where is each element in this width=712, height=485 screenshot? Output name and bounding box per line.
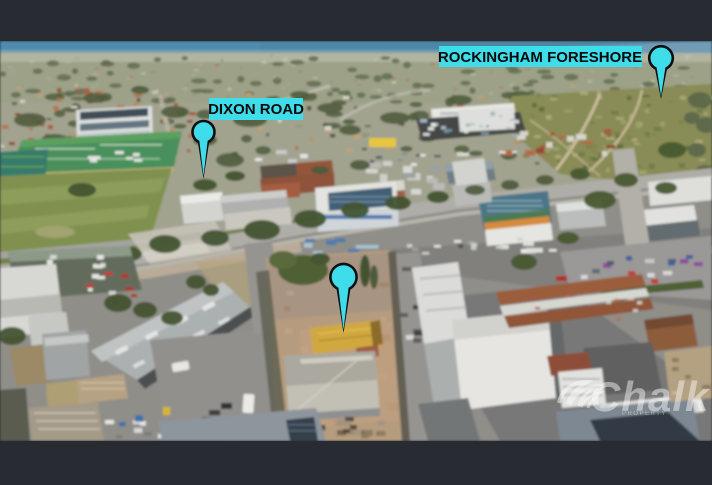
svg-text:DIXON ROAD: DIXON ROAD xyxy=(208,101,304,118)
svg-text:ROCKINGHAM FORESHORE: ROCKINGHAM FORESHORE xyxy=(438,49,642,66)
svg-text:PROPERTY: PROPERTY xyxy=(622,411,667,417)
